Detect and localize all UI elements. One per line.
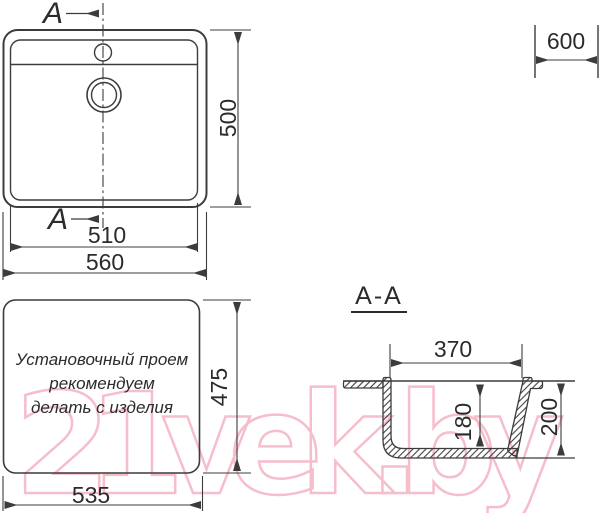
section-letter-top: A [36, 0, 70, 29]
sink-outer-edge [4, 30, 207, 207]
dim-label-510: 510 [82, 222, 132, 248]
dim-label-180: 180 [450, 397, 476, 447]
dim-label-200: 200 [536, 392, 562, 442]
section-letter-bottom: A [41, 205, 75, 235]
sink-dimension-drawing: 21vek.by [0, 0, 600, 513]
install-note-line1: Установочный проем [8, 348, 196, 372]
dim-label-560: 560 [80, 249, 130, 275]
left-flange [344, 381, 384, 388]
dim-label-475: 475 [206, 362, 232, 412]
drain-inner [92, 83, 117, 108]
install-note: Установочный проем рекомендуем делать с … [8, 348, 196, 420]
dim-label-535: 535 [66, 482, 116, 508]
section-title: A-A [351, 283, 407, 313]
dim-label-500: 500 [215, 93, 241, 143]
install-note-line3: делать с изделия [8, 396, 196, 420]
dim-label-370: 370 [428, 336, 478, 362]
dim-label-600: 600 [541, 28, 591, 54]
install-note-line2: рекомендуем [8, 372, 196, 396]
